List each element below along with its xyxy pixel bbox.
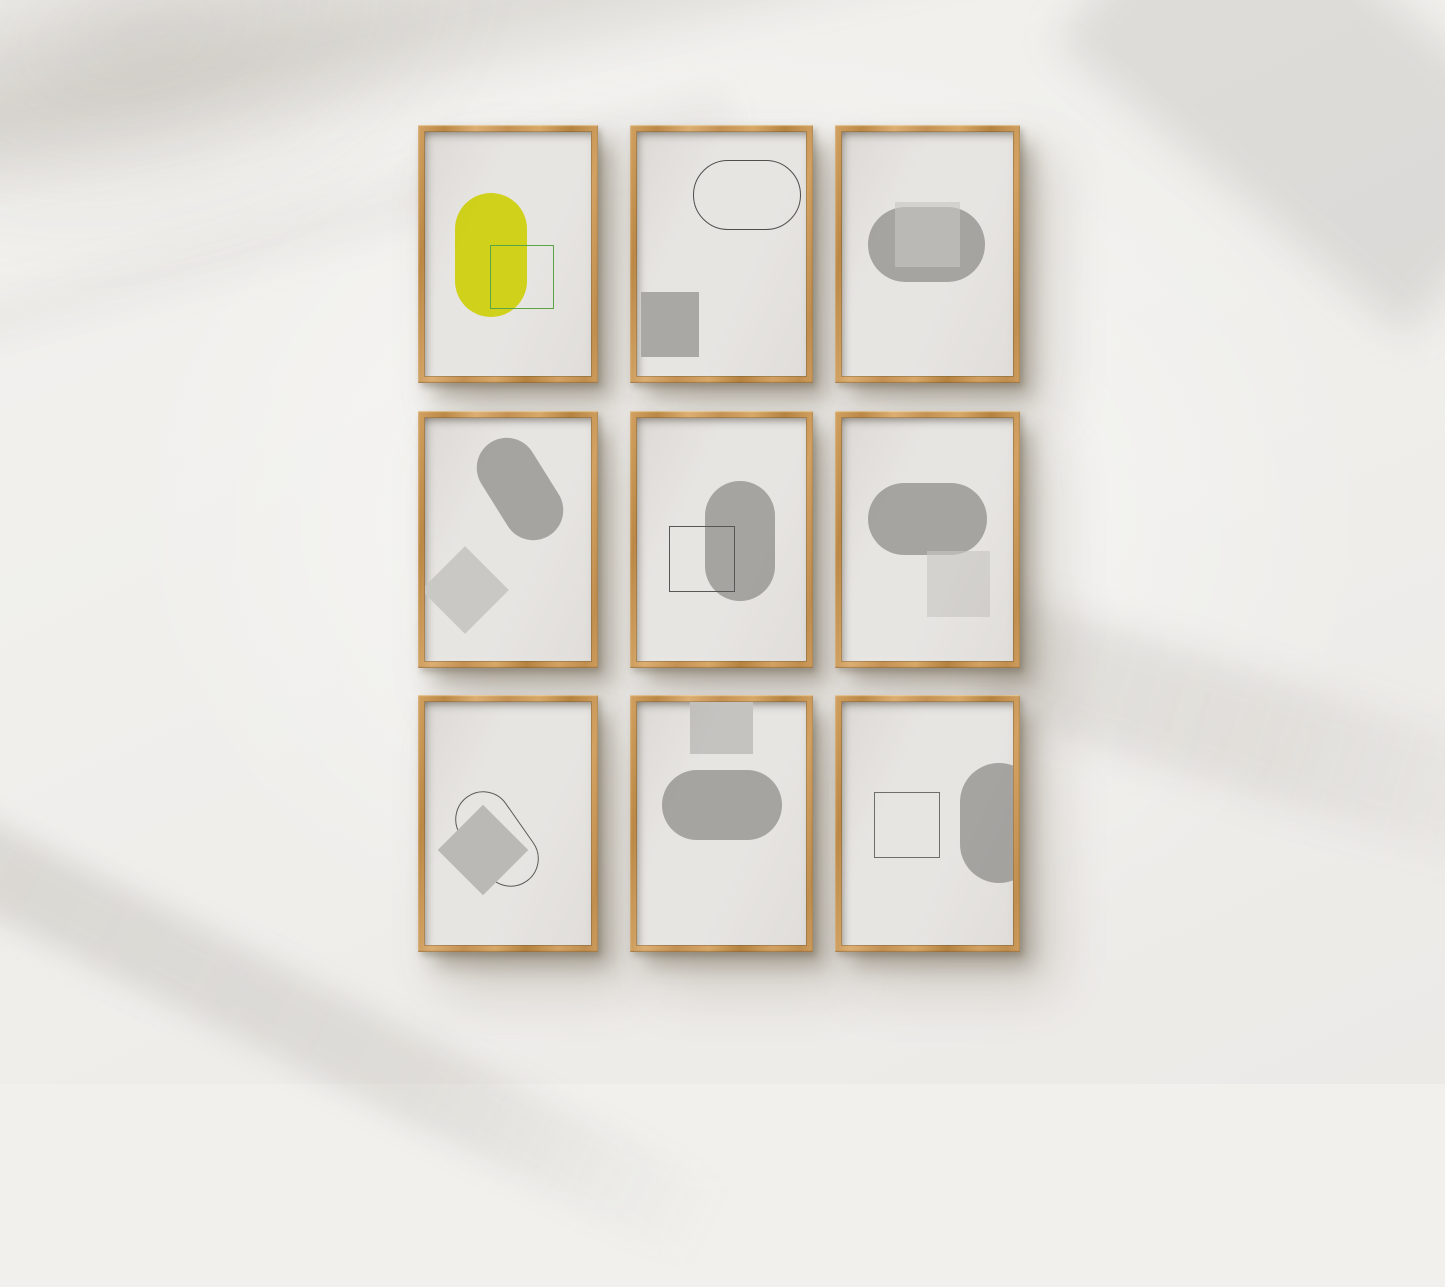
frame-top-left [418,125,598,383]
frame-bottom-center-print [637,702,806,945]
frame-middle-center [630,411,813,668]
frame-bottom-left [418,695,598,952]
square-shape [641,292,699,357]
square-outline-shape [874,792,940,858]
frame-middle-right-print [842,418,1013,661]
frame-middle-right [835,411,1020,668]
frame-top-right [835,125,1020,383]
wall [0,0,1445,1084]
frame-top-center-print [637,132,806,376]
frame-top-right-print [842,132,1013,376]
frame-middle-left [418,411,598,668]
frame-top-center [630,125,813,383]
frame-bottom-left-print [425,702,591,945]
pill-shape [868,483,987,555]
square-shape [927,551,990,617]
diamond-shape [425,546,509,634]
pill-shape [465,426,574,551]
pill-shape [662,770,782,840]
square-outline-shape [669,526,735,592]
frame-bottom-right-print [842,702,1013,945]
square-shape [690,702,753,754]
frame-bottom-center [630,695,813,952]
gallery-grid [0,0,1445,1084]
pill-shape [960,763,1013,883]
square-shape [895,202,960,267]
square-outline-shape [490,245,554,309]
frame-middle-left-print [425,418,591,661]
frame-bottom-right [835,695,1020,952]
pill-outline-shape [693,160,801,230]
frame-top-left-print [425,132,591,376]
frame-middle-center-print [637,418,806,661]
